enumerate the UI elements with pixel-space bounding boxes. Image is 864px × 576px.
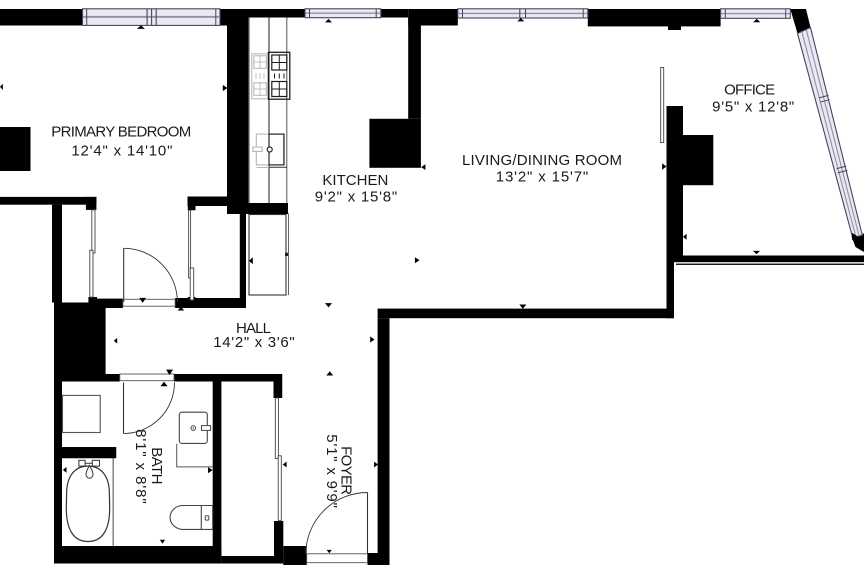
svg-text:12'4" x 14'10": 12'4" x 14'10" xyxy=(71,142,172,159)
svg-text:LIVING/DINING ROOM: LIVING/DINING ROOM xyxy=(462,152,622,169)
svg-text:14'2" x 3'6": 14'2" x 3'6" xyxy=(213,334,295,351)
svg-text:9'5" x 12'8": 9'5" x 12'8" xyxy=(712,98,794,115)
svg-text:KITCHEN: KITCHEN xyxy=(322,172,388,189)
svg-text:PRIMARY BEDROOM: PRIMARY BEDROOM xyxy=(51,123,191,140)
svg-text:8'1" x 8'8": 8'1" x 8'8" xyxy=(132,429,149,504)
svg-text:OFFICE: OFFICE xyxy=(724,81,775,98)
svg-text:13'2" x 15'7": 13'2" x 15'7" xyxy=(496,169,589,186)
svg-text:BATH: BATH xyxy=(148,447,165,484)
svg-text:5'1" x 9'9": 5'1" x 9'9" xyxy=(323,434,340,508)
svg-text:9'2" x 15'8": 9'2" x 15'8" xyxy=(315,189,398,206)
